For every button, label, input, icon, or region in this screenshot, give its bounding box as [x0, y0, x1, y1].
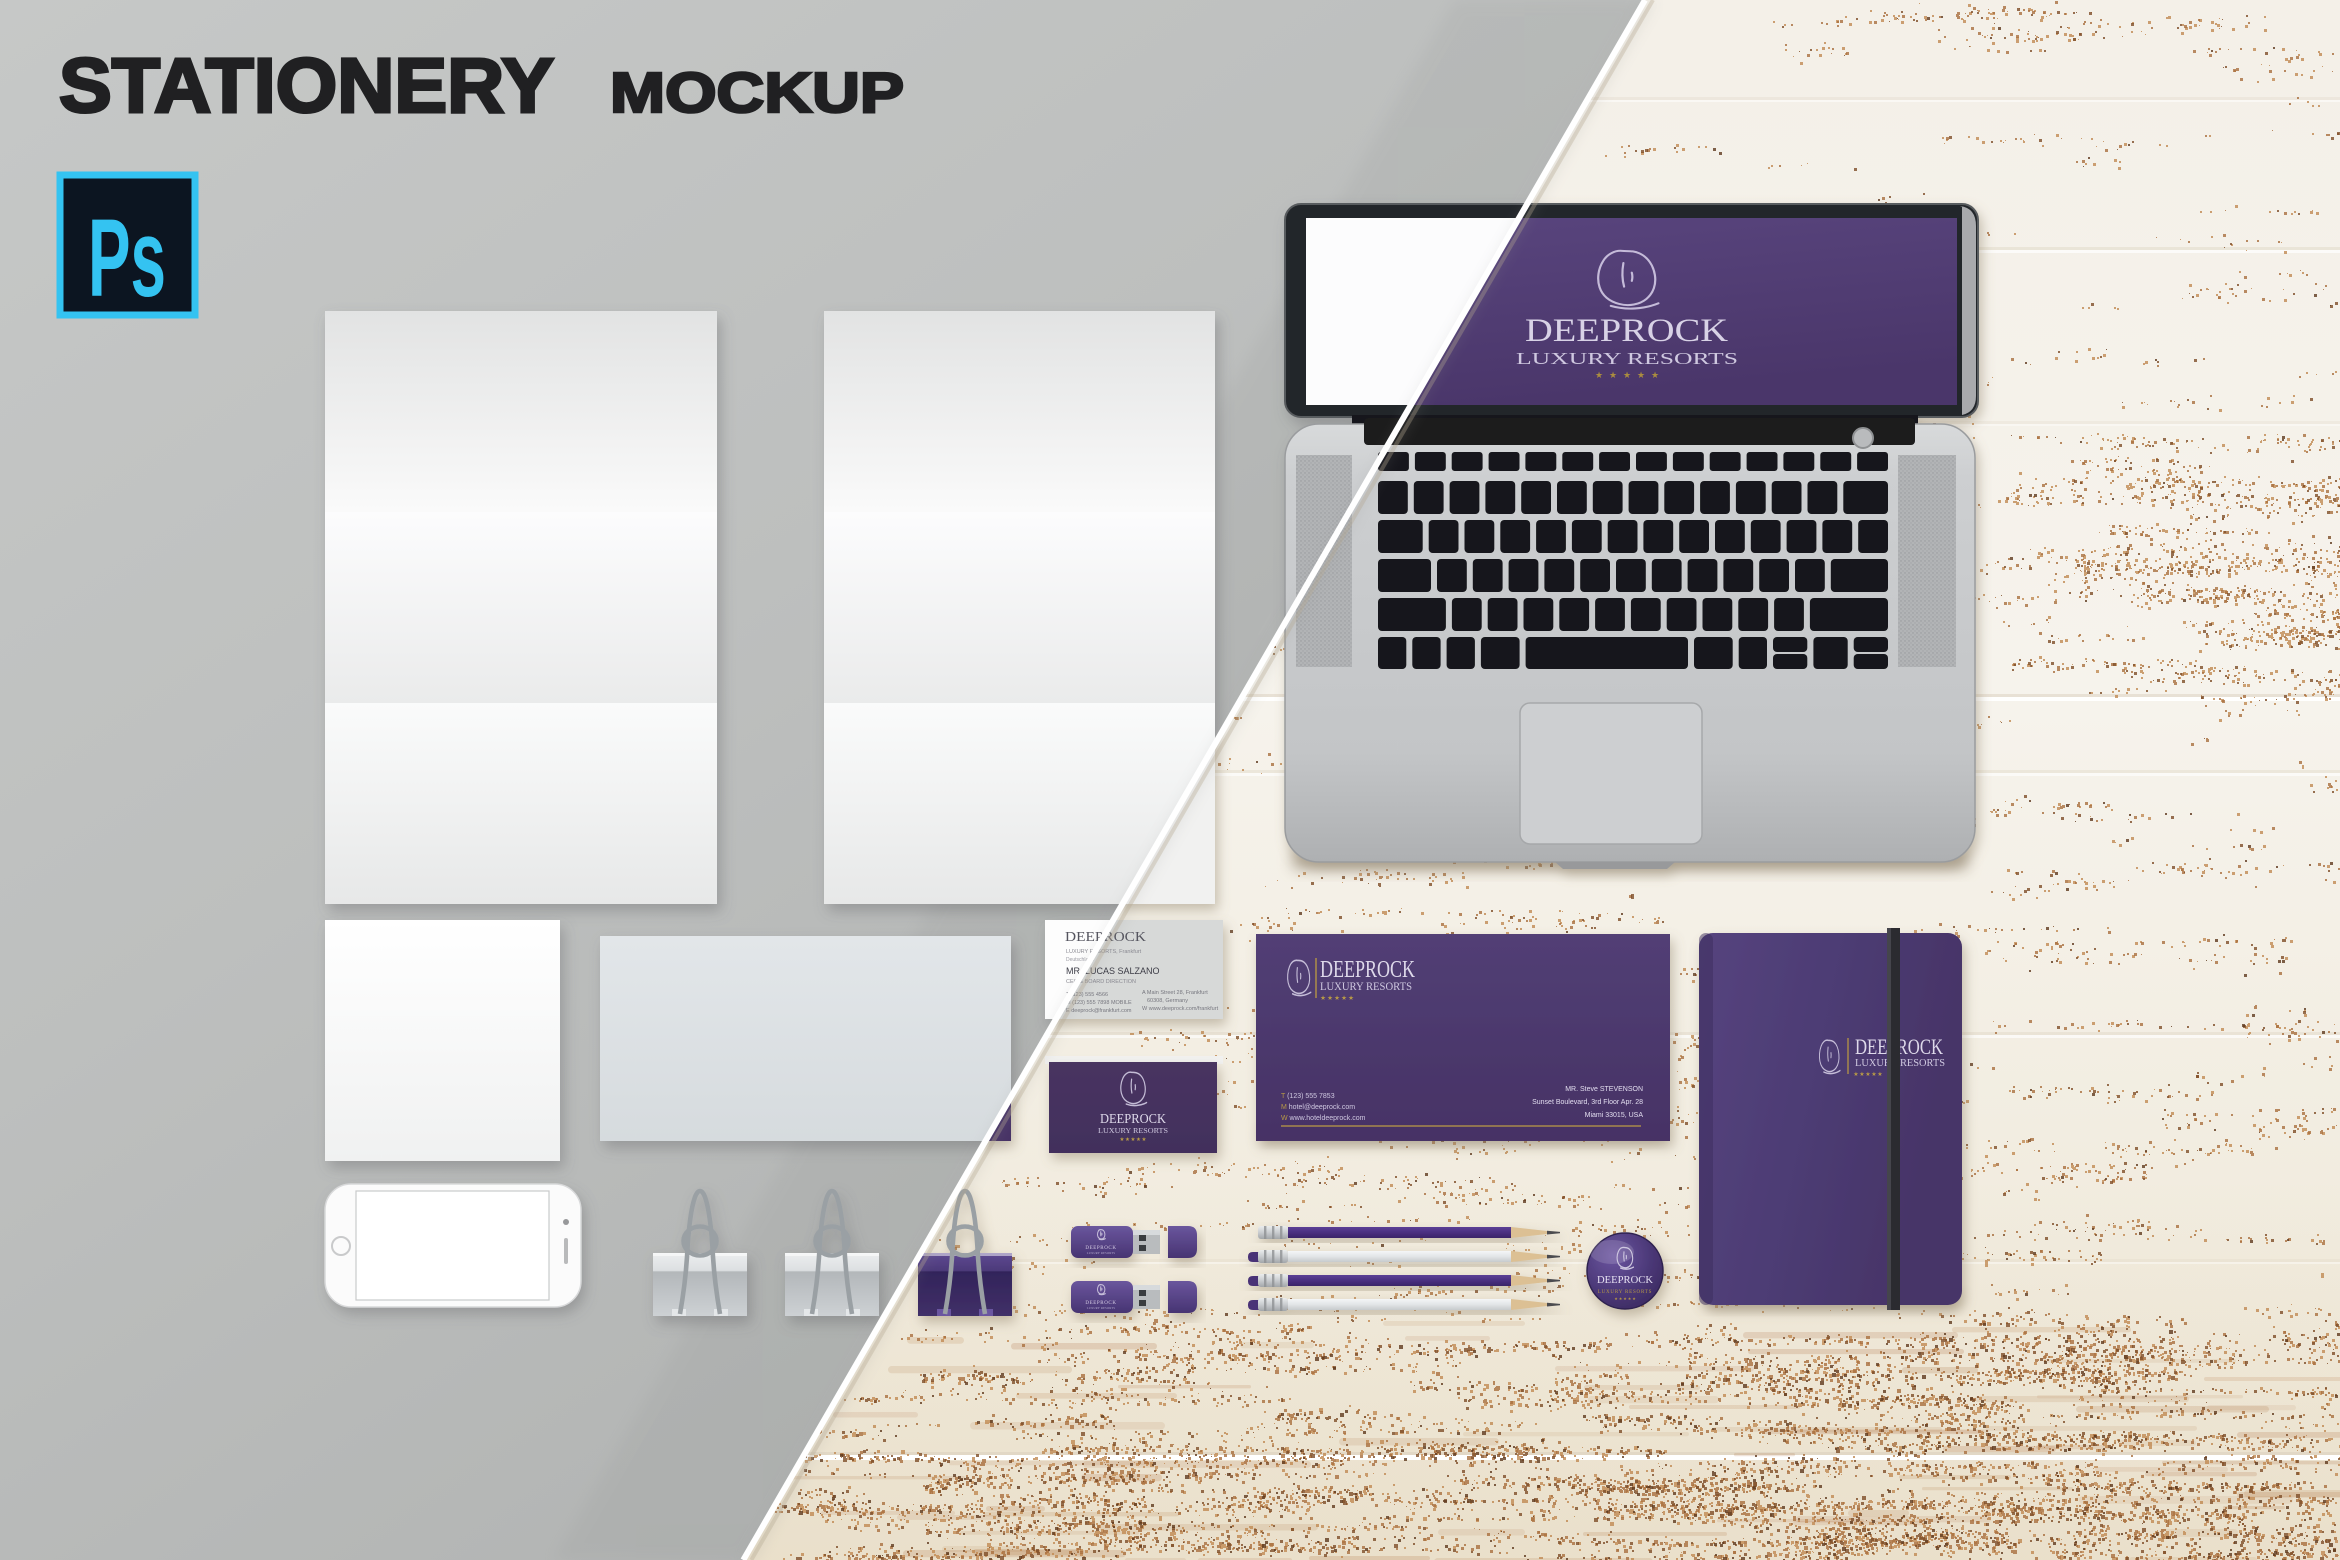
svg-text:★: ★: [1871, 1071, 1876, 1078]
svg-text:DEEPROCK: DEEPROCK: [1085, 1246, 1116, 1251]
svg-text:MOCKUP: MOCKUP: [610, 61, 904, 125]
svg-text:W www.hoteldeeprock.com: W www.hoteldeeprock.com: [1281, 1115, 1366, 1122]
svg-text:W www.deeprock.com/frankfurt: W www.deeprock.com/frankfurt: [1142, 1006, 1219, 1012]
svg-text:★: ★: [1327, 994, 1333, 1002]
svg-text:DEEPROCK: DEEPROCK: [1100, 1112, 1166, 1127]
svg-text:A Main Street 28, Frankfurt: A Main Street 28, Frankfurt: [1142, 990, 1208, 996]
svg-text:LUXURY RESORTS: LUXURY RESORTS: [1087, 1307, 1116, 1310]
svg-text:★: ★: [1136, 1136, 1141, 1143]
svg-text:LUXURY RESORTS: LUXURY RESORTS: [1087, 1252, 1116, 1255]
svg-text:★: ★: [1619, 1296, 1623, 1301]
svg-text:★: ★: [1131, 1136, 1136, 1143]
svg-text:MR. Steve STEVENSON: MR. Steve STEVENSON: [1565, 1086, 1643, 1093]
svg-text:LUXURY RESORTS: LUXURY RESORTS: [1098, 1126, 1168, 1135]
svg-text:★: ★: [1877, 1071, 1882, 1078]
svg-text:★: ★: [1632, 1296, 1636, 1301]
svg-text:★: ★: [1348, 994, 1354, 1002]
svg-text:★: ★: [1623, 370, 1631, 380]
svg-text:★: ★: [1651, 370, 1659, 380]
svg-text:★: ★: [1637, 370, 1645, 380]
svg-text:★: ★: [1614, 1296, 1618, 1301]
svg-text:★: ★: [1595, 370, 1603, 380]
svg-text:E deeprock@frankfurt.com: E deeprock@frankfurt.com: [1066, 1008, 1132, 1014]
svg-text:60308, Germany: 60308, Germany: [1147, 998, 1188, 1004]
svg-text:★: ★: [1859, 1071, 1864, 1078]
svg-text:★: ★: [1120, 1136, 1125, 1143]
svg-text:★: ★: [1341, 994, 1347, 1002]
svg-text:★: ★: [1142, 1136, 1147, 1143]
svg-text:LUXURY RESORTS: LUXURY RESORTS: [1598, 1290, 1652, 1295]
svg-text:DEEPROCK: DEEPROCK: [1085, 1301, 1116, 1306]
svg-text:★: ★: [1865, 1071, 1870, 1078]
svg-text:★: ★: [1320, 994, 1326, 1002]
svg-text:★: ★: [1609, 370, 1617, 380]
svg-text:★: ★: [1853, 1071, 1858, 1078]
svg-text:★: ★: [1628, 1296, 1632, 1301]
svg-text:DEEPROCK: DEEPROCK: [1525, 313, 1728, 349]
svg-text:Miami 33015, USA: Miami 33015, USA: [1585, 1112, 1644, 1119]
svg-text:Ps: Ps: [88, 197, 166, 320]
svg-text:★: ★: [1125, 1136, 1130, 1143]
svg-text:M hotel@deeprock.com: M hotel@deeprock.com: [1281, 1104, 1355, 1111]
svg-text:DEEPROCK: DEEPROCK: [1597, 1274, 1653, 1286]
svg-text:★: ★: [1334, 994, 1340, 1002]
svg-text:T (123) 555 7853: T (123) 555 7853: [1281, 1093, 1335, 1100]
svg-text:LUXURY RESORTS: LUXURY RESORTS: [1320, 979, 1412, 993]
svg-text:Sunset Boulevard, 3rd Floor Ap: Sunset Boulevard, 3rd Floor Apr. 28: [1532, 1099, 1643, 1106]
svg-text:★: ★: [1623, 1296, 1627, 1301]
svg-text:STATIONERY: STATIONERY: [59, 43, 554, 129]
svg-text:LUXURY RESORTS: LUXURY RESORTS: [1516, 349, 1738, 368]
